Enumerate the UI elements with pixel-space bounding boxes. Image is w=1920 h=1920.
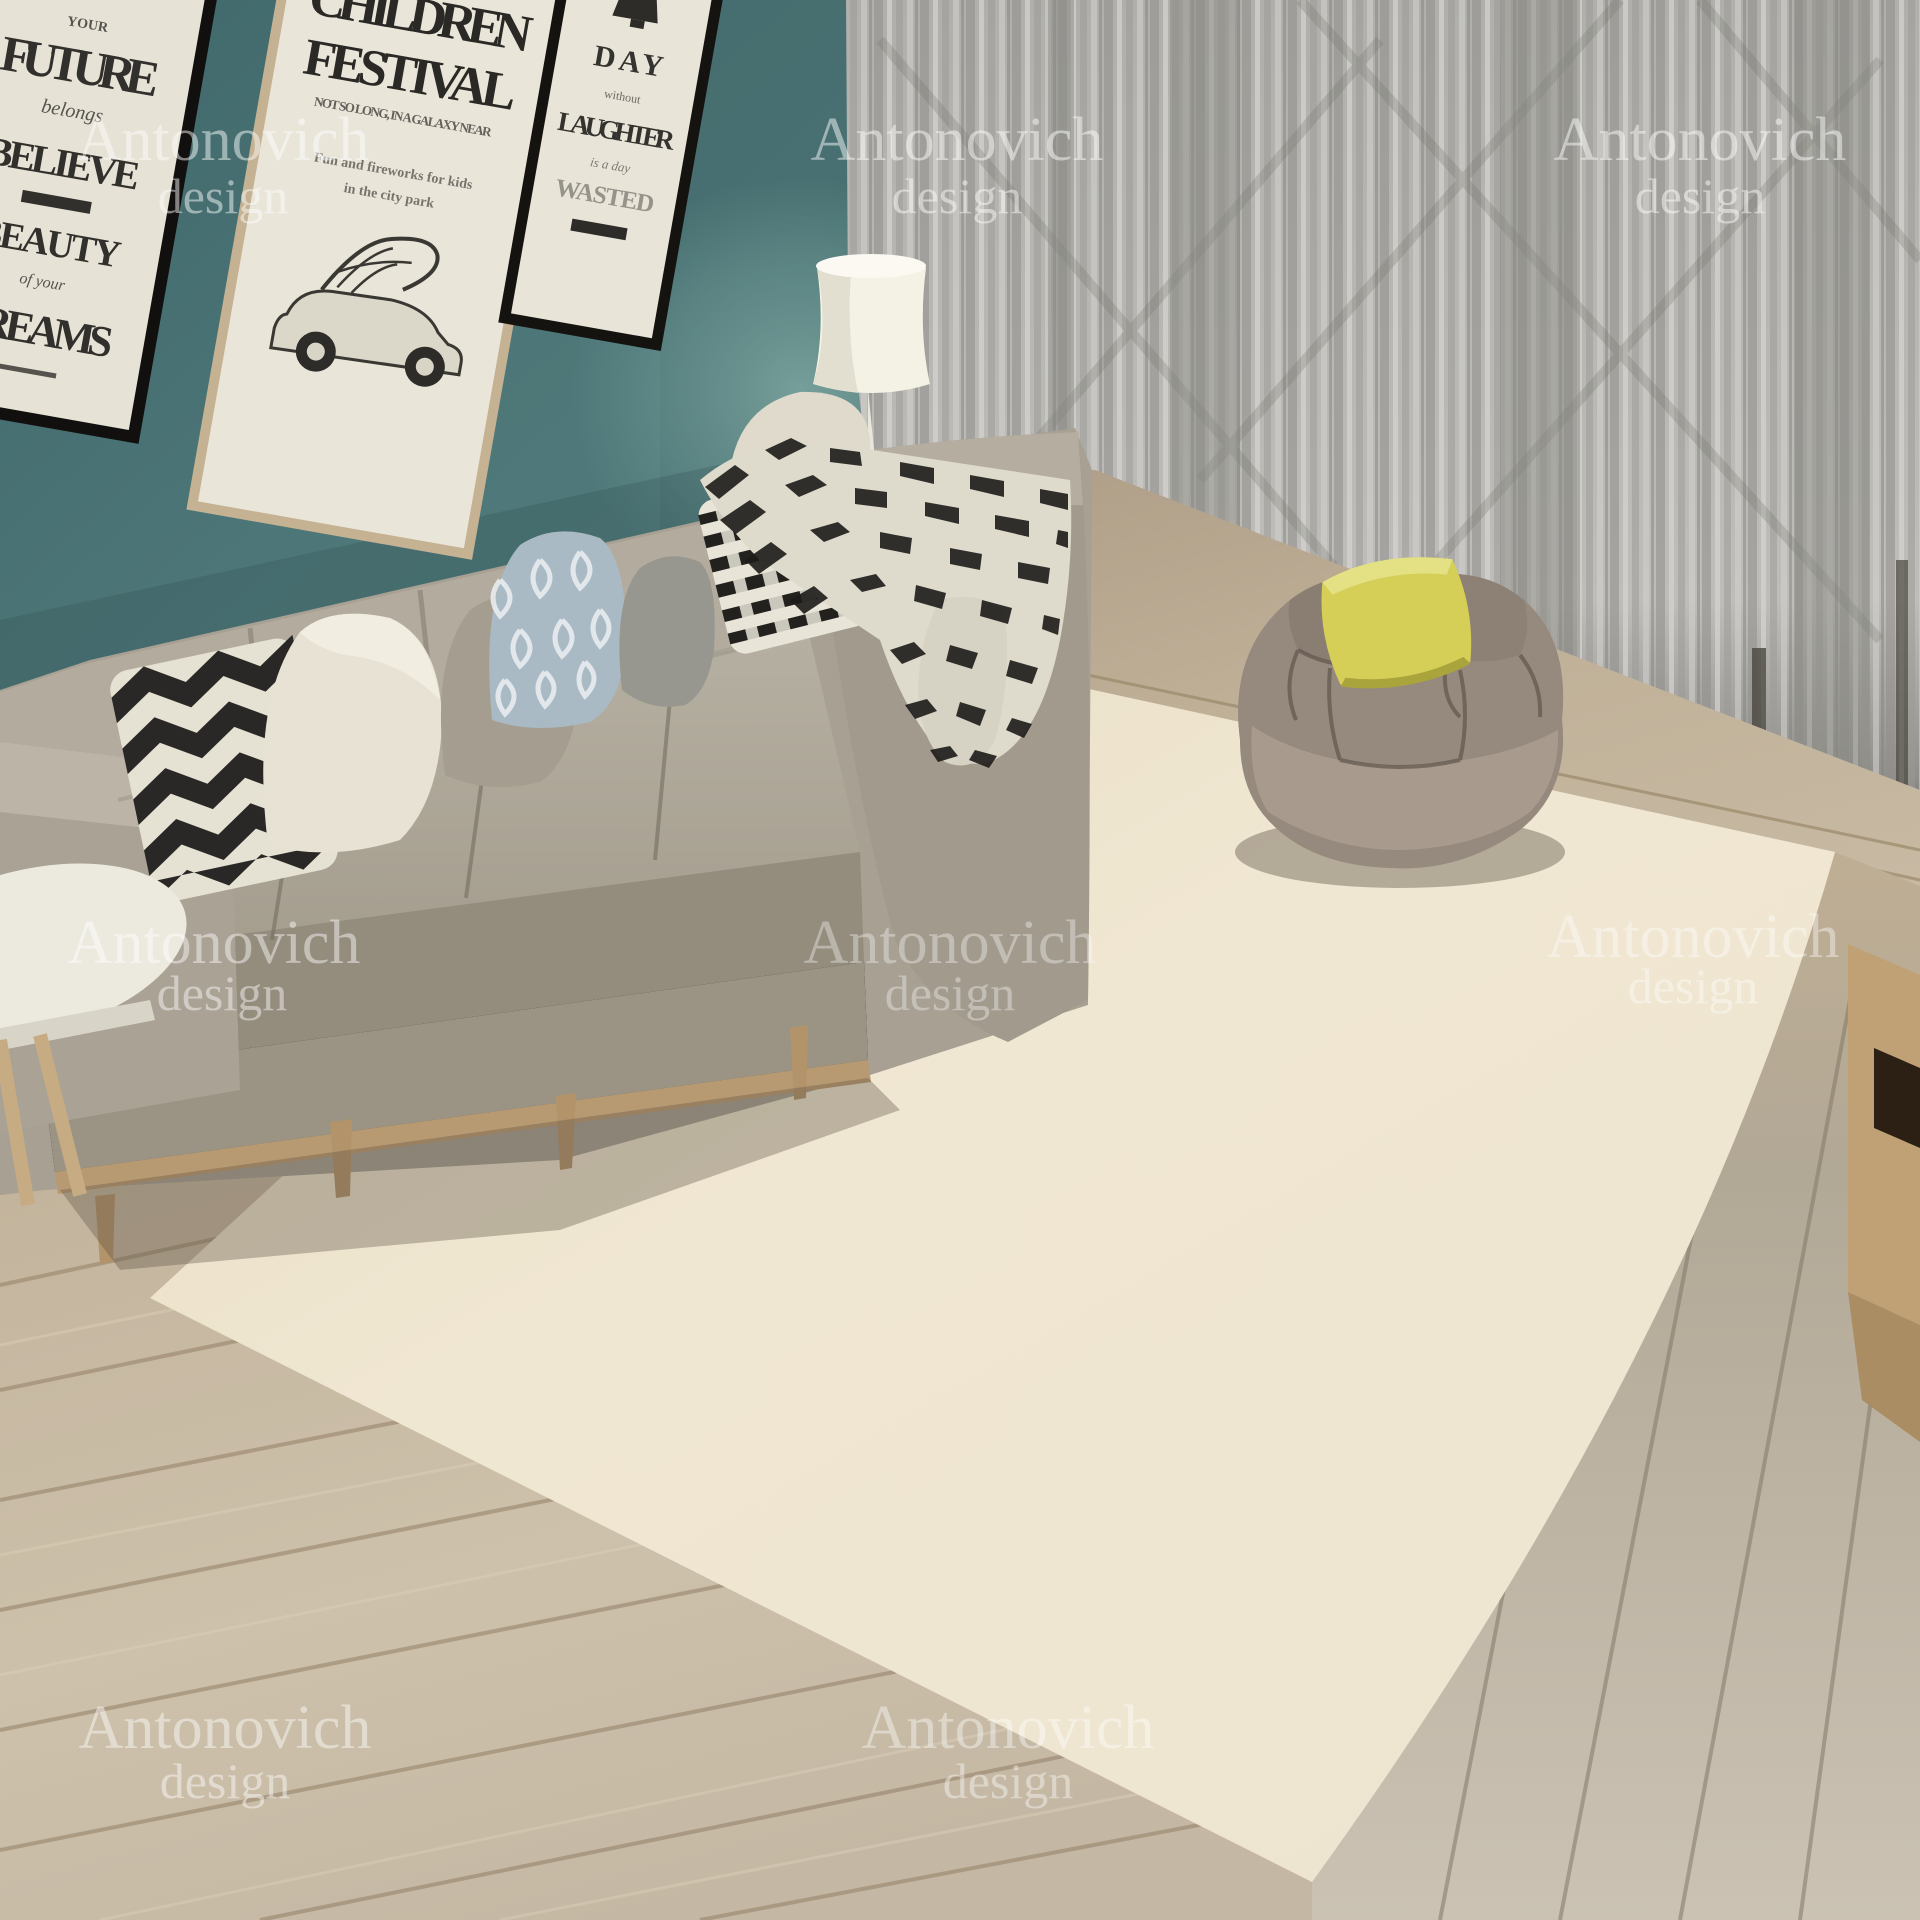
svg-text:design: design (157, 965, 288, 1021)
svg-text:Antonovich: Antonovich (1554, 106, 1847, 174)
svg-text:design: design (892, 168, 1023, 224)
svg-text:design: design (1628, 958, 1759, 1014)
svg-text:Antonovich: Antonovich (862, 1694, 1155, 1762)
svg-text:design: design (158, 168, 289, 224)
svg-text:design: design (160, 1753, 291, 1809)
svg-text:Antonovich: Antonovich (77, 106, 370, 174)
svg-text:Antonovich: Antonovich (79, 1694, 372, 1762)
svg-text:design: design (885, 965, 1016, 1021)
svg-text:Antonovich: Antonovich (811, 106, 1104, 174)
svg-text:design: design (943, 1753, 1074, 1809)
svg-text:design: design (1635, 168, 1766, 224)
